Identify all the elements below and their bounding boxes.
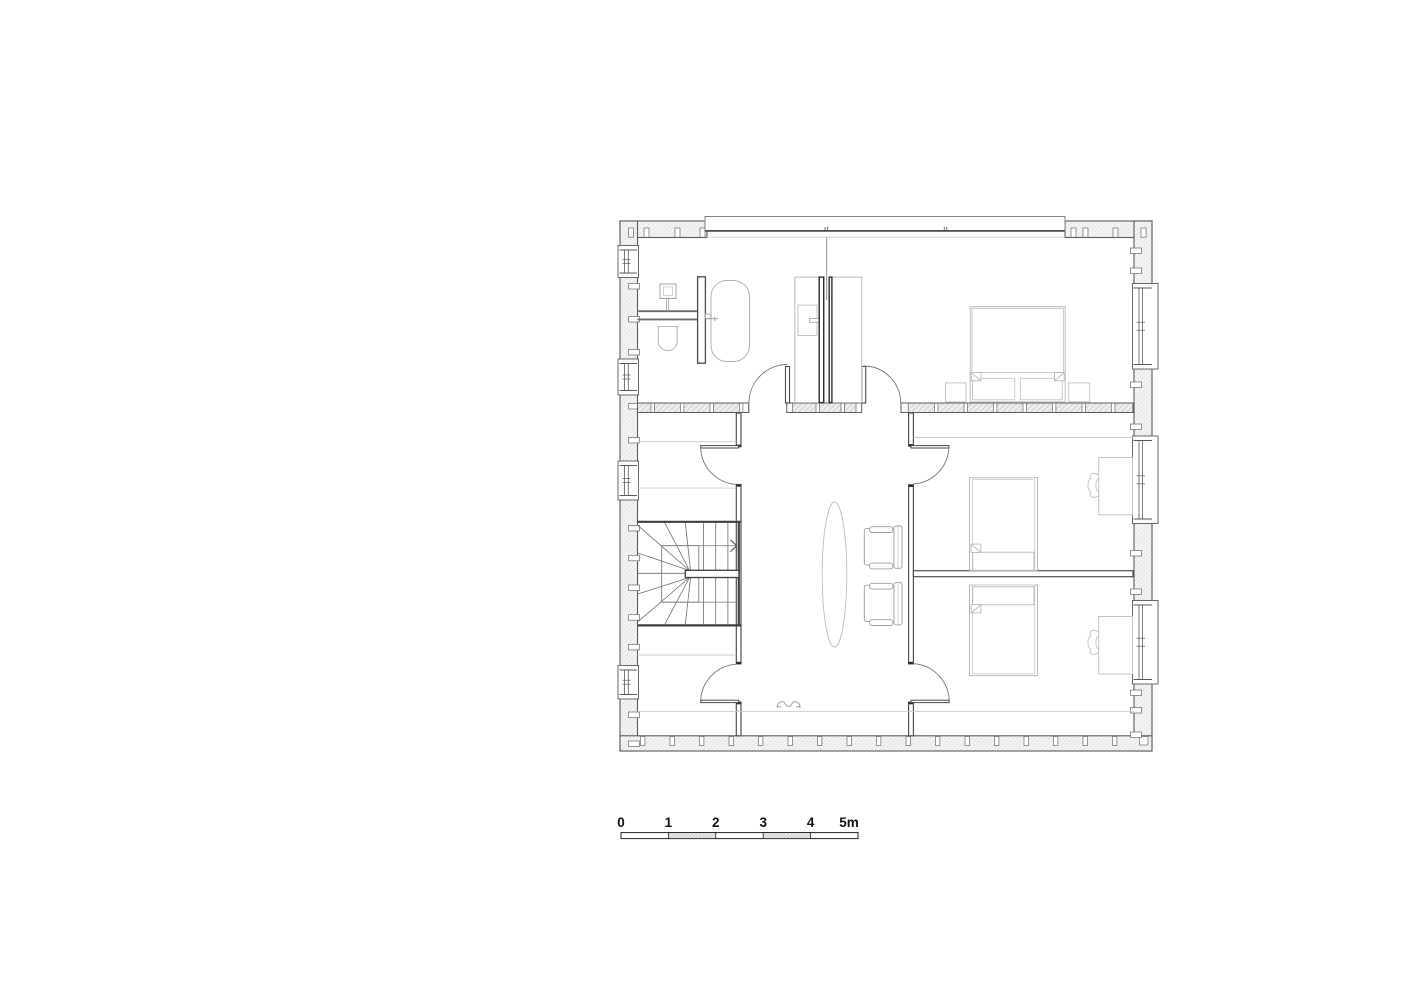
svg-text:4: 4 <box>807 815 815 830</box>
svg-text:3: 3 <box>759 815 767 830</box>
svg-text:1: 1 <box>665 815 673 830</box>
svg-text:2: 2 <box>712 815 720 830</box>
svg-text:0: 0 <box>617 815 625 830</box>
svg-text:5m: 5m <box>839 815 859 830</box>
